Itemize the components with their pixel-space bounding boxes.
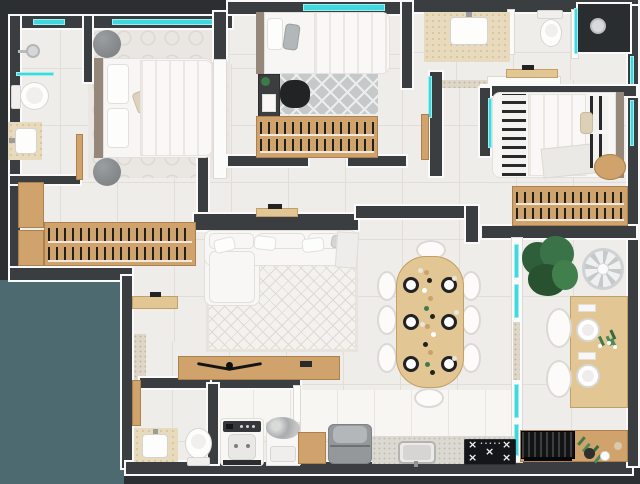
shower-glass [574,8,578,54]
bedroom2-window [303,4,385,11]
dining-chair-r3 [461,343,481,373]
dining-chair-l1 [377,271,397,301]
burner-icon: × [485,447,494,457]
grill-front-bar [524,457,572,461]
closet-bed1-bed2 [214,60,226,178]
bed3-striped-runner [502,94,526,176]
wall-bed1-bed2 [214,12,226,60]
balcony-flower-blooms [598,344,602,348]
bed2-duvet [314,12,390,74]
bed1-duvet [140,60,213,156]
bedroom1-pouf-top [93,30,121,58]
dining-chair-l3 [377,343,397,373]
wing-sculpture-hub [226,362,233,369]
dining-chair-l2 [377,305,397,335]
sofa-pillow-b [253,235,276,251]
place-setting-1 [403,277,419,293]
balcony-plate-2-inner [582,370,594,382]
balcony-napkin-2 [578,352,596,360]
washer-door-dots [234,444,238,448]
chaise-cushion [209,251,255,303]
bedroom2-wardrobe-clothes-row2 [260,139,374,153]
balcony-armchair-2 [546,360,572,398]
dining-chair-r1 [461,271,481,301]
closet-clothes-row1 [48,228,192,243]
hall-console-left [256,208,298,217]
bedroom2-wardrobe-clothes-row1 [260,122,374,136]
washer-base [223,460,261,465]
entry-sideboard [132,296,178,309]
refrigerator-gap [330,445,370,447]
closet-cabinet-a [18,182,44,228]
bed2-headboard [256,12,264,74]
wall-bathroom2-south [488,77,560,86]
balcony-wall-granite [513,322,520,380]
bed3-accent-pillow [580,112,593,134]
vanity3-faucet [153,429,158,434]
bed1-pillow-a [107,64,129,104]
wall-hall-east [466,206,478,242]
hall-console-right-item [522,65,534,70]
fan-hub [597,263,609,275]
place-setting-2 [441,277,457,293]
kitchen-cabinet [298,432,326,464]
courtyard-area [0,280,124,484]
place-setting-3 [403,314,419,330]
place-setting-4 [441,314,457,330]
vanity1-sink [15,128,37,154]
bedroom1-pouf-bottom [93,158,121,186]
shower-head [26,44,40,58]
hall-closet-door [421,114,429,160]
closet-cabinet-b [18,230,44,266]
bed2-pillow [267,18,283,50]
washer-knob-dots [240,425,243,428]
wall-bathroom1-east [84,16,92,82]
vanity2-faucet [466,12,472,17]
bedroom3-wardrobe-clothes-row1 [516,192,624,205]
grill-bowl-beige [614,442,622,450]
toilet3-tank [187,457,210,466]
clothes-pile [266,417,300,439]
hall-console-left-item [268,204,282,209]
balcony-glass-b [514,284,519,318]
bedroom2-office-chair [280,80,310,108]
balcony-plate-1-inner [582,324,594,336]
tv-sideboard [178,356,340,380]
table-centerpiece [424,270,429,275]
toilet2-seat [545,24,558,37]
bedroom1-window [112,19,218,25]
hall-console-right [506,69,558,78]
tub-basin [270,446,296,462]
burner-icon: × [468,453,477,463]
vanity1-faucet [9,138,15,143]
washer-door-face [228,434,256,460]
cooktop-knobs: ••••• [480,441,502,447]
balcony-napkin-1 [578,304,596,312]
partition-glass [428,76,432,118]
burner-icon: × [502,440,511,450]
vanity2-sink [450,17,488,45]
dining-chair-bottom [414,388,444,408]
bedroom3-stool [594,154,626,180]
place-setting-6 [441,356,457,372]
burner-icon: × [502,453,511,463]
entry-sideboard-item [150,292,161,297]
toilet3-seat [191,434,206,449]
sofa-pillow-c [301,237,324,253]
bed3-throw [541,143,596,178]
balcony-glass-a [514,244,519,278]
refrigerator-lid [333,426,367,443]
bathroom3-door [132,380,141,426]
toilet1-seat [26,87,43,104]
barbecue-grill [522,432,574,458]
wall-closet-south [10,268,132,280]
closet-clothes-row2 [48,247,192,262]
kitchen-sink-basin [403,445,431,460]
bed1-pillow-b [107,108,129,148]
shower-partition-glass [16,72,54,76]
vanity3-sink [142,434,168,458]
grill-plate-dark [584,448,595,459]
bathroom1-door [76,134,83,180]
gas-cooktop: × × × × × ••••• [464,439,516,465]
sideboard-item [300,361,312,367]
floor-plan-canvas: × × × × × ••••• [0,0,640,484]
wall-bedroom2-east [402,2,412,88]
desk-laptop [262,94,276,112]
balcony-plant-leaf-4 [552,260,578,290]
bedroom3-wardrobe-clothes-row2 [516,208,624,221]
dining-chair-r2 [461,305,481,335]
wall-west-lower [122,276,132,468]
place-setting-5 [403,356,419,372]
bathroom1-window [33,19,65,25]
washer-display [226,424,233,429]
balcony-glass-c [514,384,519,418]
shower2-head [590,18,606,34]
burner-icon: × [468,440,477,450]
bedroom3-window-b [630,100,634,146]
kitchen-faucet [414,461,418,467]
sofa-throw [335,231,359,268]
desk-plant [261,77,270,86]
bed1-headboard [94,58,103,158]
toilet2-tank [537,10,563,19]
balcony-armchair-1 [546,308,572,348]
grill-plate-white [600,451,610,461]
wall-hall-south-2 [356,206,478,218]
